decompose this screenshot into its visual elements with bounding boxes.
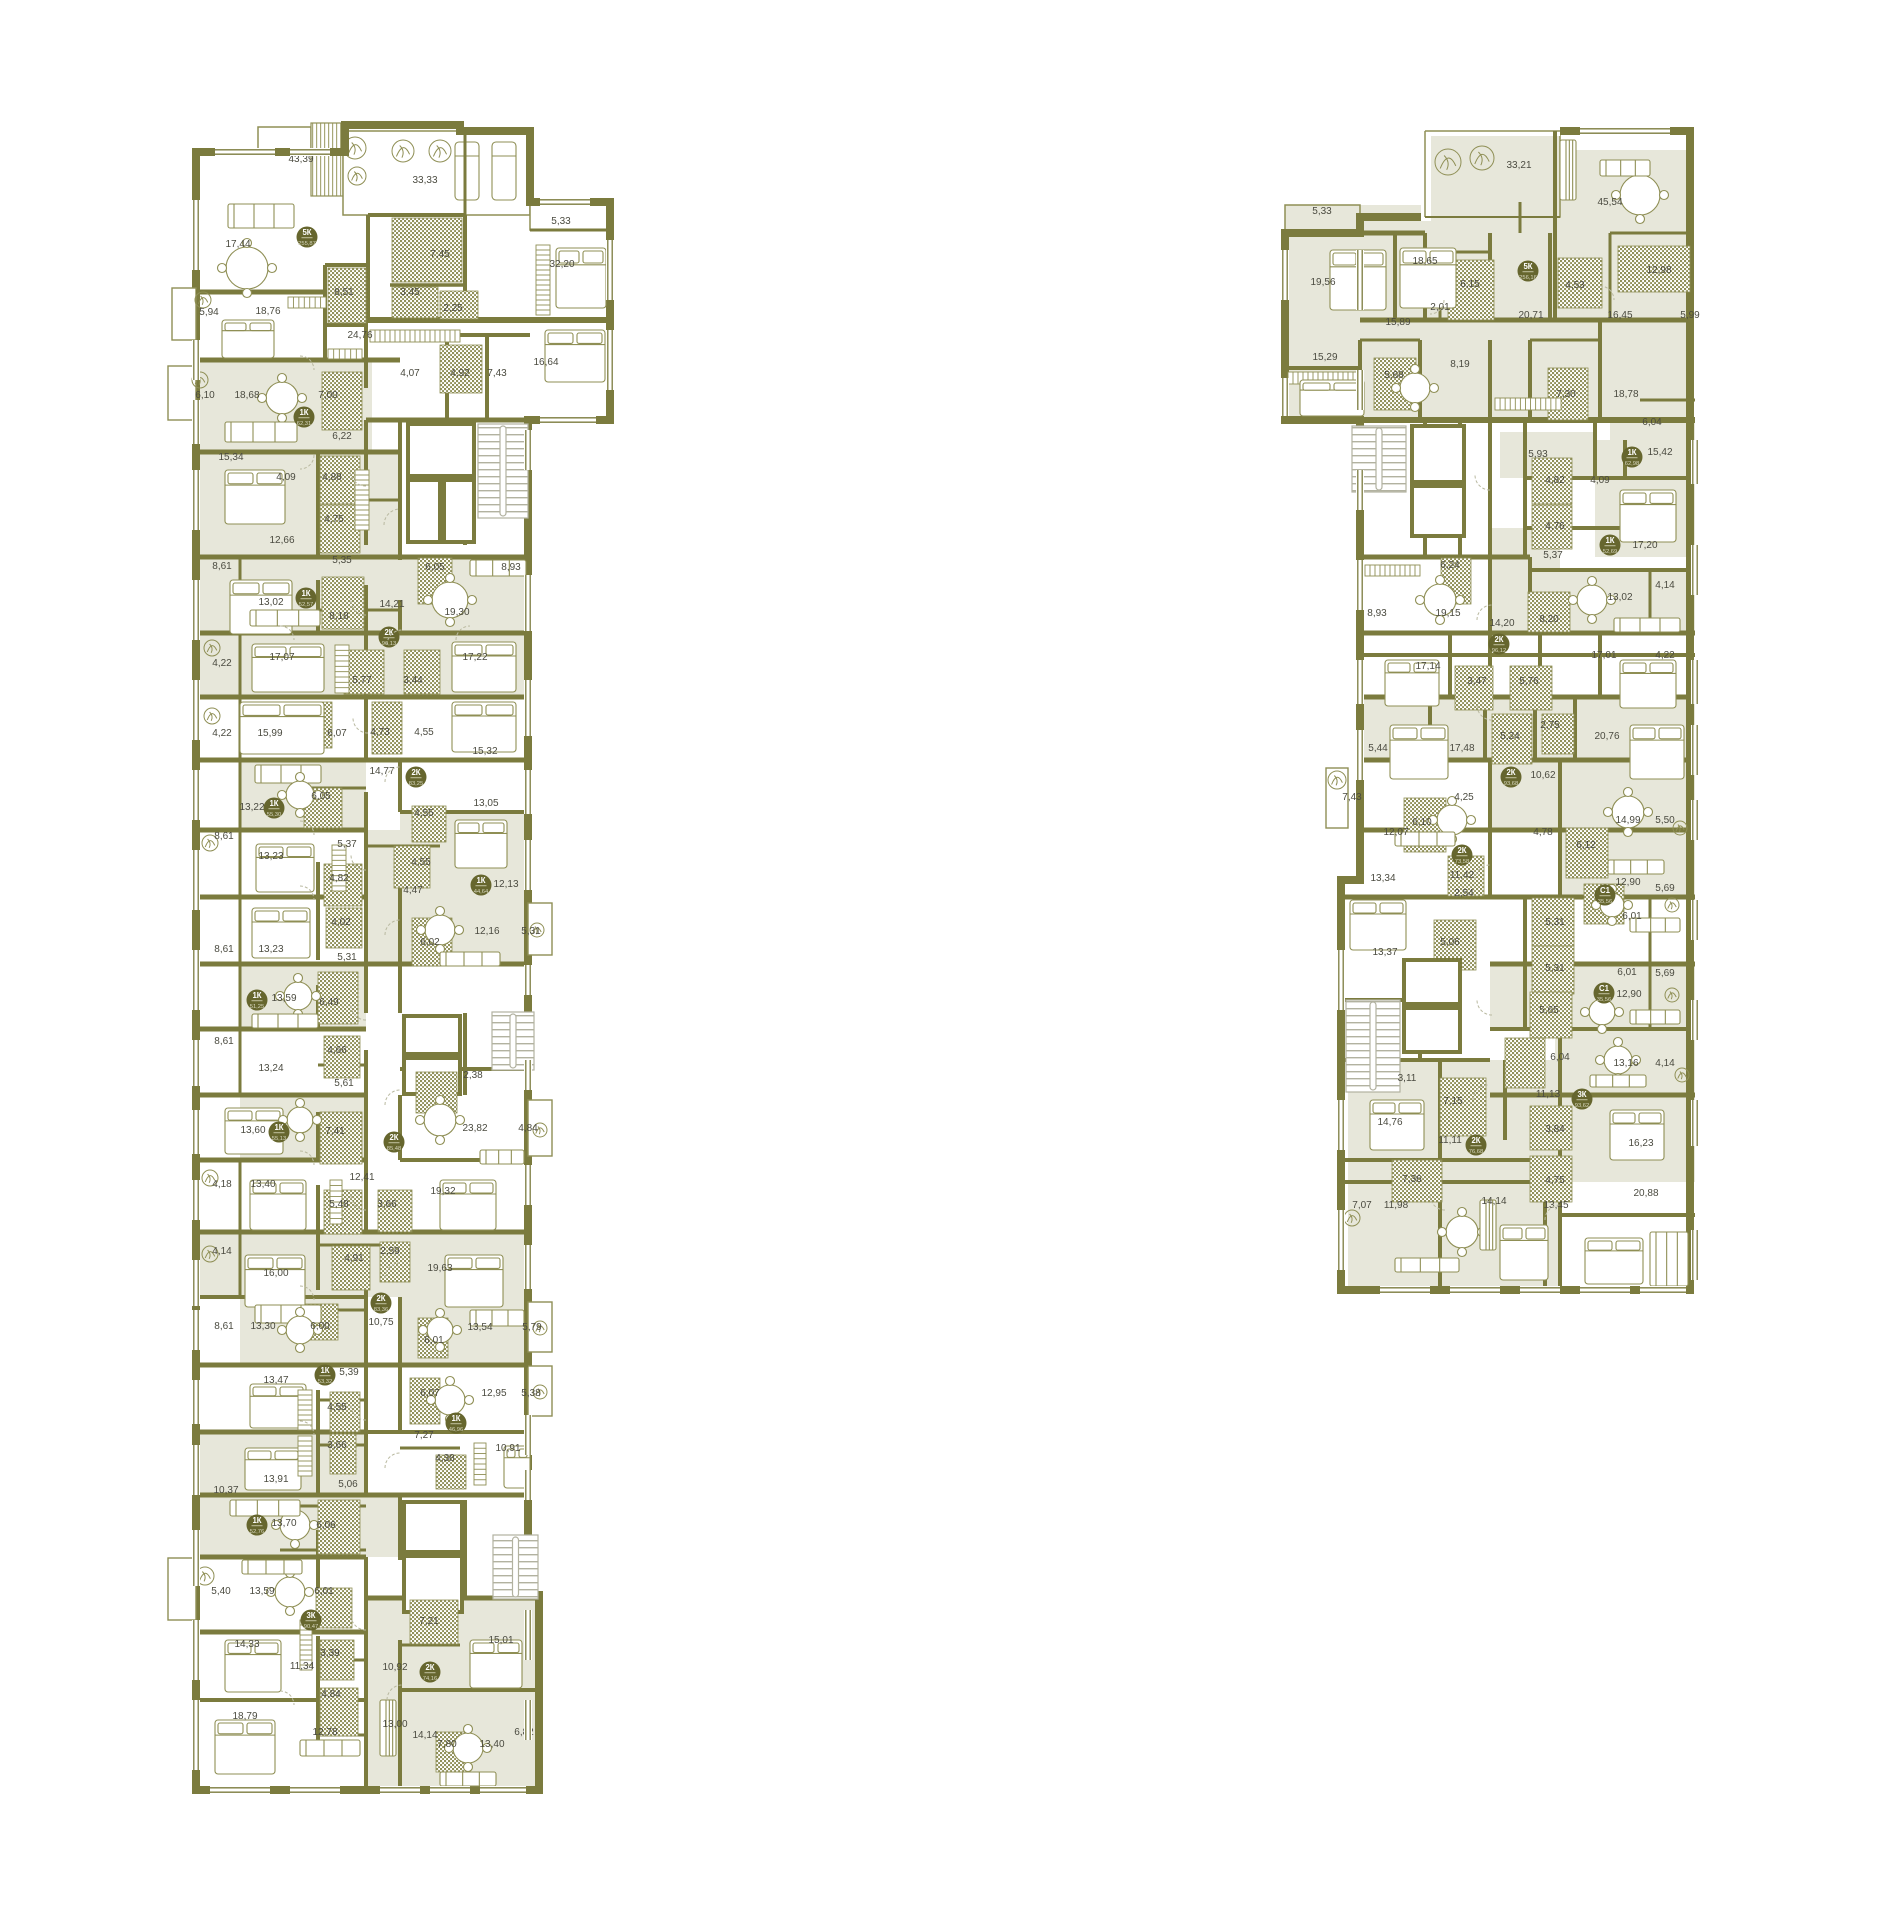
svg-text:17,22: 17,22 (462, 652, 487, 663)
svg-text:4,76: 4,76 (1545, 521, 1565, 532)
svg-text:6,10: 6,10 (195, 390, 215, 401)
svg-text:96,13: 96,13 (382, 641, 397, 647)
svg-text:6,01: 6,01 (1617, 967, 1637, 978)
svg-text:6,22: 6,22 (332, 431, 352, 442)
svg-text:83,36: 83,36 (374, 1307, 389, 1313)
svg-text:12,16: 12,16 (474, 926, 499, 937)
svg-text:4,25: 4,25 (1454, 792, 1474, 803)
svg-text:13,40: 13,40 (479, 1739, 504, 1750)
svg-text:2,75: 2,75 (1540, 720, 1560, 731)
svg-text:4,84: 4,84 (518, 1123, 538, 1134)
svg-text:4,22: 4,22 (1655, 650, 1675, 661)
svg-text:3К: 3К (306, 1611, 315, 1620)
svg-text:8,20: 8,20 (1539, 614, 1559, 625)
svg-text:33,21: 33,21 (1506, 160, 1531, 171)
svg-text:11,42: 11,42 (1450, 870, 1475, 881)
svg-text:5,39: 5,39 (339, 1367, 359, 1378)
svg-text:4,22: 4,22 (212, 658, 232, 669)
svg-text:5,38: 5,38 (521, 1388, 541, 1399)
svg-text:5,44: 5,44 (1368, 743, 1388, 754)
svg-text:5,69: 5,69 (1655, 883, 1675, 894)
svg-text:18,65: 18,65 (1412, 256, 1437, 267)
svg-text:6,49: 6,49 (319, 997, 339, 1008)
svg-text:1К: 1К (451, 1414, 460, 1423)
svg-text:4,07: 4,07 (400, 368, 420, 379)
svg-text:20,71: 20,71 (1518, 310, 1543, 321)
svg-text:4,14: 4,14 (1655, 580, 1675, 591)
svg-text:8,61: 8,61 (214, 1321, 234, 1332)
svg-text:13,60: 13,60 (240, 1125, 265, 1136)
svg-text:14,33: 14,33 (234, 1639, 259, 1650)
svg-text:2,59: 2,59 (380, 1246, 400, 1257)
svg-text:4,75: 4,75 (324, 514, 344, 525)
svg-text:4,53: 4,53 (1565, 280, 1585, 291)
svg-text:5,33: 5,33 (551, 216, 571, 227)
svg-text:11,13: 11,13 (1536, 1089, 1561, 1100)
svg-text:1К: 1К (252, 1516, 261, 1525)
svg-text:53,32: 53,32 (318, 1379, 333, 1385)
svg-text:16,00: 16,00 (263, 1268, 288, 1279)
svg-text:7,80: 7,80 (437, 1739, 457, 1750)
svg-text:5,31: 5,31 (521, 926, 541, 937)
svg-text:6,01: 6,01 (424, 1335, 444, 1346)
svg-text:15,29: 15,29 (1312, 352, 1337, 363)
svg-text:52,69: 52,69 (1603, 549, 1618, 555)
svg-text:10,75: 10,75 (368, 1317, 393, 1328)
svg-text:1К: 1К (269, 799, 278, 808)
svg-text:96,12: 96,12 (1492, 648, 1507, 654)
svg-text:13,30: 13,30 (250, 1321, 275, 1332)
svg-text:4,78: 4,78 (1533, 827, 1553, 838)
svg-text:13,16: 13,16 (1613, 1058, 1638, 1069)
svg-text:93,68: 93,68 (1504, 781, 1519, 787)
svg-text:12,98: 12,98 (1646, 265, 1671, 276)
svg-text:2,25: 2,25 (443, 303, 463, 314)
svg-text:90,47: 90,47 (304, 1624, 319, 1630)
svg-text:5,99: 5,99 (1680, 310, 1700, 321)
svg-text:6,24: 6,24 (1440, 560, 1460, 571)
svg-text:6,06: 6,06 (316, 1520, 336, 1531)
svg-text:13,59: 13,59 (271, 993, 296, 1004)
svg-text:4,91: 4,91 (344, 1253, 364, 1264)
svg-text:5,31: 5,31 (337, 952, 357, 963)
svg-text:4,82: 4,82 (329, 873, 349, 884)
svg-text:4,09: 4,09 (276, 472, 296, 483)
svg-text:4,55: 4,55 (414, 808, 434, 819)
svg-text:7,30: 7,30 (1556, 389, 1576, 400)
svg-text:3,66: 3,66 (377, 1199, 397, 1210)
svg-text:33,33: 33,33 (412, 175, 437, 186)
svg-text:76,68: 76,68 (1469, 1149, 1484, 1155)
svg-text:19,56: 19,56 (1310, 277, 1335, 288)
svg-text:51,25: 51,25 (250, 1004, 265, 1010)
svg-text:5,94: 5,94 (199, 307, 219, 318)
svg-text:12,13: 12,13 (493, 879, 518, 890)
svg-text:2К: 2К (425, 1663, 434, 1672)
svg-text:10,91: 10,91 (495, 1443, 520, 1454)
svg-text:8,61: 8,61 (214, 831, 234, 842)
svg-text:5,79: 5,79 (522, 1322, 542, 1333)
svg-text:15,99: 15,99 (257, 728, 282, 739)
svg-text:1К: 1К (299, 408, 308, 417)
svg-text:256,16: 256,16 (1519, 275, 1537, 281)
svg-text:12,78: 12,78 (312, 1727, 337, 1738)
svg-text:4,14: 4,14 (1655, 1058, 1675, 1069)
svg-text:2,54: 2,54 (1454, 888, 1474, 899)
svg-text:14,14: 14,14 (412, 1730, 437, 1741)
svg-text:15,01: 15,01 (488, 1635, 513, 1646)
svg-text:7,15: 7,15 (1443, 1096, 1463, 1107)
svg-text:4,92: 4,92 (450, 368, 470, 379)
svg-text:8,51: 8,51 (334, 287, 354, 298)
svg-text:13,91: 13,91 (263, 1474, 288, 1485)
svg-text:13,24: 13,24 (258, 1063, 283, 1074)
svg-text:73,58: 73,58 (1455, 859, 1470, 865)
svg-text:6,15: 6,15 (1460, 279, 1480, 290)
svg-text:15,89: 15,89 (1385, 317, 1410, 328)
svg-text:17,01: 17,01 (1591, 650, 1616, 661)
svg-text:12,90: 12,90 (1615, 877, 1640, 888)
svg-text:12,66: 12,66 (269, 535, 294, 546)
svg-text:8,61: 8,61 (214, 944, 234, 955)
svg-text:20,88: 20,88 (1633, 1188, 1658, 1199)
svg-text:8,93: 8,93 (1367, 608, 1387, 619)
svg-text:7,21: 7,21 (419, 1616, 439, 1627)
svg-text:4,47: 4,47 (403, 885, 423, 896)
svg-text:1К: 1К (1627, 448, 1636, 457)
svg-text:16,64: 16,64 (533, 357, 558, 368)
svg-text:17,20: 17,20 (1632, 540, 1657, 551)
svg-text:13,54: 13,54 (467, 1322, 492, 1333)
svg-text:2К: 2К (389, 1133, 398, 1142)
svg-text:4,38: 4,38 (435, 1453, 455, 1464)
svg-text:255,87: 255,87 (298, 241, 316, 247)
svg-text:2,01: 2,01 (1430, 302, 1450, 313)
svg-text:13,22: 13,22 (239, 802, 264, 813)
svg-text:5,06: 5,06 (1440, 937, 1460, 948)
svg-text:20,76: 20,76 (1594, 731, 1619, 742)
svg-text:13,47: 13,47 (263, 1375, 288, 1386)
svg-text:14,99: 14,99 (1615, 815, 1640, 826)
svg-text:11,11: 11,11 (1438, 1135, 1462, 1146)
svg-text:7,43: 7,43 (487, 368, 507, 379)
svg-text:11,34: 11,34 (290, 1661, 315, 1672)
svg-text:19,15: 19,15 (1435, 608, 1460, 619)
svg-text:12,41: 12,41 (349, 1172, 374, 1183)
svg-text:7,27: 7,27 (414, 1430, 434, 1441)
svg-text:24,76: 24,76 (347, 330, 372, 341)
svg-text:4,55: 4,55 (414, 727, 434, 738)
svg-text:19,30: 19,30 (444, 607, 469, 618)
svg-text:62,31: 62,31 (297, 421, 312, 427)
svg-text:13,23: 13,23 (258, 851, 283, 862)
svg-text:5К: 5К (302, 228, 311, 237)
svg-text:6,01: 6,01 (314, 1586, 334, 1597)
svg-text:45,54: 45,54 (1597, 197, 1622, 208)
svg-text:4,55: 4,55 (327, 1402, 347, 1413)
svg-text:5,61: 5,61 (334, 1078, 354, 1089)
svg-text:5,77: 5,77 (352, 675, 372, 686)
svg-text:2К: 2К (376, 1294, 385, 1303)
svg-text:46,96: 46,96 (449, 1427, 464, 1433)
svg-text:3К: 3К (1577, 1090, 1586, 1099)
svg-text:13,45: 13,45 (1543, 1200, 1568, 1211)
svg-text:7,41: 7,41 (325, 1126, 345, 1137)
svg-text:83,25: 83,25 (409, 781, 424, 787)
svg-text:18,78: 18,78 (1613, 389, 1638, 400)
svg-text:5,69: 5,69 (1655, 968, 1675, 979)
svg-text:13,23: 13,23 (258, 944, 283, 955)
svg-text:8,61: 8,61 (212, 561, 232, 572)
svg-text:5,68: 5,68 (1384, 370, 1404, 381)
svg-text:4,82: 4,82 (1545, 475, 1565, 486)
svg-text:16,45: 16,45 (1607, 310, 1632, 321)
svg-text:44,64: 44,64 (474, 889, 489, 895)
svg-text:4,88: 4,88 (322, 472, 342, 483)
svg-text:10,37: 10,37 (213, 1485, 238, 1496)
svg-text:1К: 1К (476, 876, 485, 885)
svg-text:6,10: 6,10 (1412, 817, 1432, 828)
svg-text:С1: С1 (1600, 886, 1611, 895)
svg-text:13,02: 13,02 (258, 597, 283, 608)
svg-text:17,14: 17,14 (1415, 661, 1440, 672)
svg-text:14,20: 14,20 (1489, 618, 1514, 629)
svg-text:4,09: 4,09 (1590, 475, 1610, 486)
svg-text:19,32: 19,32 (430, 1186, 455, 1197)
svg-text:2К: 2К (384, 628, 393, 637)
svg-text:15,42: 15,42 (1647, 447, 1672, 458)
svg-text:4,22: 4,22 (212, 728, 232, 739)
svg-text:3,47: 3,47 (1467, 676, 1487, 687)
svg-text:93,62: 93,62 (1575, 1103, 1590, 1109)
svg-text:5,37: 5,37 (337, 839, 357, 850)
svg-text:2К: 2К (1457, 846, 1466, 855)
svg-text:7,00: 7,00 (318, 390, 338, 401)
svg-text:2,38: 2,38 (463, 1070, 483, 1081)
svg-text:5,93: 5,93 (1528, 449, 1548, 460)
svg-text:6,04: 6,04 (1550, 1052, 1570, 1063)
svg-text:3,66: 3,66 (327, 1440, 347, 1451)
svg-text:2К: 2К (411, 768, 420, 777)
svg-text:16,23: 16,23 (1628, 1138, 1653, 1149)
svg-text:6,02: 6,02 (420, 937, 440, 948)
svg-text:5,24: 5,24 (1500, 731, 1520, 742)
svg-text:7,36: 7,36 (1402, 1174, 1422, 1185)
svg-text:15,34: 15,34 (218, 452, 243, 463)
svg-text:5,50: 5,50 (1655, 815, 1675, 826)
svg-text:1К: 1К (320, 1366, 329, 1375)
svg-text:3,44: 3,44 (403, 675, 423, 686)
svg-text:18,79: 18,79 (232, 1711, 257, 1722)
svg-text:55,30: 55,30 (267, 812, 282, 818)
svg-text:35,56: 35,56 (1598, 899, 1613, 905)
svg-text:3,84: 3,84 (1545, 1124, 1565, 1135)
svg-text:2К: 2К (1494, 635, 1503, 644)
svg-text:С1: С1 (1599, 984, 1610, 993)
svg-text:62,98: 62,98 (1625, 461, 1640, 467)
svg-text:2К: 2К (1506, 768, 1515, 777)
svg-text:17,07: 17,07 (269, 652, 294, 663)
svg-text:6,12: 6,12 (1576, 840, 1596, 851)
svg-text:5,65: 5,65 (1539, 1005, 1559, 1016)
svg-text:1К: 1К (252, 991, 261, 1000)
svg-text:13,34: 13,34 (1370, 873, 1395, 884)
svg-text:8,93: 8,93 (501, 562, 521, 573)
svg-text:7,07: 7,07 (1352, 1200, 1372, 1211)
svg-text:32,20: 32,20 (549, 259, 574, 270)
svg-text:5,76: 5,76 (1519, 676, 1539, 687)
svg-text:2К: 2К (1471, 1136, 1480, 1145)
svg-text:23,82: 23,82 (462, 1123, 487, 1134)
svg-text:13,05: 13,05 (473, 798, 498, 809)
svg-text:6,07: 6,07 (327, 728, 347, 739)
svg-text:18,68: 18,68 (234, 390, 259, 401)
svg-text:13,00: 13,00 (382, 1719, 407, 1730)
svg-text:4,02: 4,02 (331, 917, 351, 928)
svg-text:1К: 1К (274, 1123, 283, 1132)
svg-text:6,05: 6,05 (311, 791, 331, 802)
svg-text:5,37: 5,37 (1543, 550, 1563, 561)
svg-text:1К: 1К (301, 589, 310, 598)
svg-text:74,16: 74,16 (423, 1676, 438, 1682)
svg-text:10,92: 10,92 (382, 1662, 407, 1673)
svg-text:4,84: 4,84 (321, 1689, 341, 1700)
svg-text:35,56: 35,56 (1597, 997, 1612, 1003)
svg-text:13,40: 13,40 (250, 1179, 275, 1190)
svg-text:8,61: 8,61 (214, 1036, 234, 1047)
svg-text:3,45: 3,45 (400, 287, 420, 298)
svg-text:6,04: 6,04 (1642, 417, 1662, 428)
svg-text:55,13: 55,13 (272, 1136, 287, 1142)
svg-text:1К: 1К (1605, 536, 1614, 545)
svg-text:5,33: 5,33 (1312, 206, 1332, 217)
svg-text:6,00: 6,00 (310, 1321, 330, 1332)
svg-text:4,73: 4,73 (370, 727, 390, 738)
svg-text:12,95: 12,95 (481, 1388, 506, 1399)
svg-text:10,62: 10,62 (1530, 770, 1555, 781)
svg-text:5,31: 5,31 (1545, 917, 1565, 928)
svg-text:13,59: 13,59 (249, 1586, 274, 1597)
svg-text:13,37: 13,37 (1372, 947, 1397, 958)
svg-text:4,18: 4,18 (212, 1179, 232, 1190)
svg-text:14,77: 14,77 (369, 766, 394, 777)
svg-text:4,75: 4,75 (1545, 1175, 1565, 1186)
svg-text:14,21: 14,21 (379, 599, 404, 610)
svg-text:4,66: 4,66 (327, 1045, 347, 1056)
svg-text:5,06: 5,06 (338, 1479, 358, 1490)
svg-text:5,31: 5,31 (1545, 963, 1565, 974)
svg-text:6,01: 6,01 (1622, 911, 1642, 922)
svg-text:3,39: 3,39 (320, 1648, 340, 1659)
svg-text:5К: 5К (1523, 262, 1532, 271)
svg-text:6,05: 6,05 (425, 562, 445, 573)
svg-text:5,48: 5,48 (329, 1199, 349, 1210)
svg-text:7,43: 7,43 (1342, 792, 1362, 803)
svg-text:52,76: 52,76 (250, 1529, 265, 1535)
svg-text:5,35: 5,35 (332, 555, 352, 566)
svg-text:19,63: 19,63 (427, 1263, 452, 1274)
svg-text:18,76: 18,76 (255, 306, 280, 317)
svg-text:52,57: 52,57 (299, 602, 314, 608)
svg-text:7,45: 7,45 (430, 249, 450, 260)
svg-text:6,07: 6,07 (420, 1388, 440, 1399)
svg-text:14,14: 14,14 (1481, 1196, 1506, 1207)
svg-text:12,90: 12,90 (1616, 989, 1641, 1000)
svg-text:85,48: 85,48 (387, 1146, 402, 1152)
svg-text:15,32: 15,32 (472, 746, 497, 757)
svg-text:13,02: 13,02 (1607, 592, 1632, 603)
svg-text:17,44: 17,44 (225, 239, 250, 250)
svg-text:11,98: 11,98 (1384, 1200, 1409, 1211)
svg-text:3,11: 3,11 (1398, 1073, 1417, 1084)
svg-text:14,76: 14,76 (1377, 1117, 1402, 1128)
svg-text:8,19: 8,19 (1450, 359, 1470, 370)
svg-text:17,48: 17,48 (1449, 743, 1474, 754)
svg-text:4,14: 4,14 (212, 1246, 232, 1257)
svg-text:12,07: 12,07 (1383, 827, 1408, 838)
svg-text:13,70: 13,70 (271, 1518, 296, 1529)
svg-text:5,40: 5,40 (211, 1586, 231, 1597)
svg-text:8,18: 8,18 (329, 611, 349, 622)
svg-text:4,55: 4,55 (411, 857, 431, 868)
